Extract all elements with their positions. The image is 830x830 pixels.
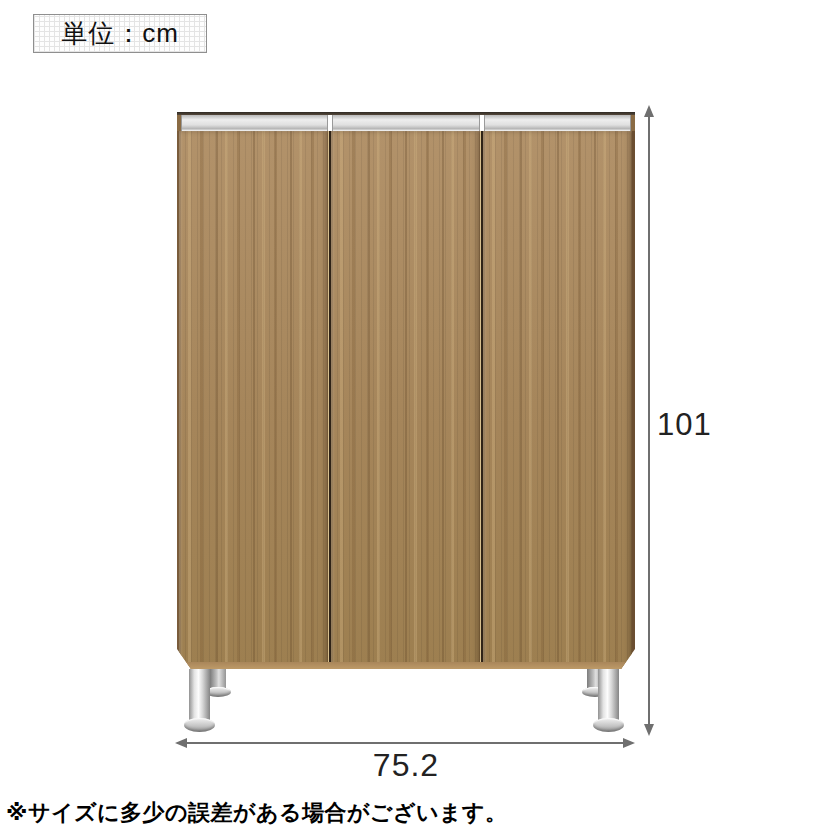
door-row (177, 131, 635, 669)
side-panel-tab-right (631, 115, 635, 131)
handle-rail-left (181, 115, 328, 131)
unit-label: 単位：cm (61, 16, 179, 51)
arrow-down-icon (644, 724, 654, 736)
leg-foot-front-right (593, 718, 624, 732)
door-right (483, 131, 632, 669)
unit-label-box: 単位：cm (33, 14, 207, 53)
leg-front-left (189, 669, 210, 722)
cabinet (177, 112, 635, 669)
width-dimension-value: 75.2 (177, 747, 635, 784)
handle-rail-row (177, 115, 635, 131)
leg-foot-front-left (184, 718, 215, 732)
handle-rail-right (484, 115, 631, 131)
door-left (179, 131, 328, 669)
leg-front-right (598, 669, 619, 722)
door-center (331, 131, 480, 669)
height-dimension-line (648, 114, 650, 728)
arrow-up-icon (644, 105, 654, 117)
handle-rail-center (332, 115, 479, 131)
product-dimension-diagram: 単位：cm 101 75.2 (0, 0, 830, 830)
height-dimension-value: 101 (657, 407, 712, 443)
size-disclaimer-note: ※サイズに多少の誤差がある場合がございます。 (6, 798, 508, 828)
width-dimension-line (180, 742, 630, 744)
cabinet-bottom-edge (183, 662, 629, 669)
